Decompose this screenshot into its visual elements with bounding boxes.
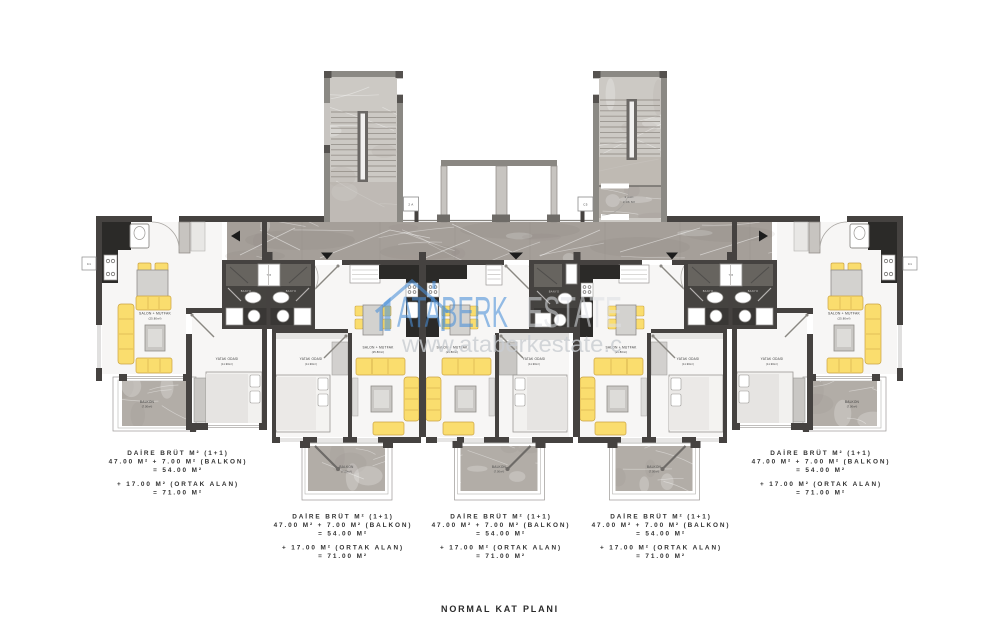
svg-text:+ 17.00 M² (ORTAK ALAN): + 17.00 M² (ORTAK ALAN) [760,481,882,488]
svg-text:(11.90m²): (11.90m²) [221,362,233,366]
svg-text:C1: C1 [87,262,91,266]
svg-text:= 71.00 M²: = 71.00 M² [796,490,846,497]
svg-text:(7.00m²): (7.00m²) [341,470,352,474]
svg-text:2 A: 2 A [408,203,413,207]
svg-text:+ 17.00 M² (ORTAK ALAN): + 17.00 M² (ORTAK ALAN) [282,545,404,552]
svg-text:= 54.00 M²: = 54.00 M² [153,467,203,474]
svg-text:(7.00m²): (7.00m²) [142,405,153,409]
svg-text:SALON + MUTFAK: SALON + MUTFAK [362,346,394,350]
svg-text:BALKON: BALKON [339,465,354,469]
svg-text:BANYO: BANYO [703,289,714,293]
svg-text:+ 17.00 M² (ORTAK ALAN): + 17.00 M² (ORTAK ALAN) [600,545,722,552]
svg-text:DAİRE BRÜT M² (1+1): DAİRE BRÜT M² (1+1) [127,448,229,457]
svg-text:YATAK ODASI: YATAK ODASI [300,357,323,361]
svg-text:+ 17.00 M² (ORTAK ALAN): + 17.00 M² (ORTAK ALAN) [440,545,562,552]
svg-text:= 54.00 M²: = 54.00 M² [318,531,368,538]
svg-text:= 54.00 M²: = 54.00 M² [476,531,526,538]
svg-text:BALKON: BALKON [140,400,155,404]
svg-text:ATABERK: ATABERK [397,288,508,337]
svg-text:BANYO: BANYO [286,289,297,293]
svg-text:DAİRE BRÜT M² (1+1): DAİRE BRÜT M² (1+1) [450,512,552,521]
svg-text:(25.80m²): (25.80m²) [372,350,385,354]
svg-text:= 71.00 M²: = 71.00 M² [318,553,368,560]
svg-text:(7.00m²): (7.00m²) [847,405,858,409]
svg-text:YATAK ODASI: YATAK ODASI [523,357,546,361]
svg-text:NORMAL KAT PLANI: NORMAL KAT PLANI [441,604,559,614]
svg-text:1 kori: 1 kori [624,195,633,199]
svg-text:(11.90m²): (11.90m²) [682,362,694,366]
svg-text:(11.90m²): (11.90m²) [305,362,317,366]
svg-text:DAİRE BRÜT M² (1+1): DAİRE BRÜT M² (1+1) [770,448,872,457]
svg-text:(25.80m²): (25.80m²) [148,317,161,321]
svg-text:SALON + MUTFAK: SALON + MUTFAK [139,312,171,316]
svg-text:(11.90m²): (11.90m²) [766,362,778,366]
svg-text:(25.80m²): (25.80m²) [837,317,850,321]
svg-text:BANYO: BANYO [241,289,252,293]
svg-text:DAİRE BRÜT M² (1+1): DAİRE BRÜT M² (1+1) [292,512,394,521]
svg-text:C1: C1 [908,262,912,266]
svg-text:YATAK ODASI: YATAK ODASI [677,357,700,361]
svg-text:(7.00m²): (7.00m²) [494,470,505,474]
svg-text:(11.90m²): (11.90m²) [528,362,540,366]
svg-text:ESTATE: ESTATE [526,288,622,337]
svg-text:47.00 M² + 7.00 M² (BALKON): 47.00 M² + 7.00 M² (BALKON) [274,522,413,529]
svg-text:= 54.00 M²: = 54.00 M² [796,467,846,474]
svg-text:= 71.00 M²: = 71.00 M² [476,553,526,560]
svg-text:www.ataberkestate.c: www.ataberkestate.c [401,331,622,357]
svg-text:(7.00m²): (7.00m²) [649,470,660,474]
svg-text:47.00 M² + 7.00 M² (BALKON): 47.00 M² + 7.00 M² (BALKON) [432,522,571,529]
svg-text:C5: C5 [583,203,587,207]
svg-text:BALKON: BALKON [647,465,662,469]
svg-text:47.00 M² + 7.00 M² (BALKON): 47.00 M² + 7.00 M² (BALKON) [109,459,248,466]
svg-text:YATAK ODASI: YATAK ODASI [761,357,784,361]
svg-text:DAİRE BRÜT M² (1+1): DAİRE BRÜT M² (1+1) [610,512,712,521]
svg-text:BALKON: BALKON [492,465,507,469]
svg-text:= 71.00 M²: = 71.00 M² [636,553,686,560]
svg-text:SALON + MUTFAK: SALON + MUTFAK [828,312,860,316]
svg-text:BANYO: BANYO [748,289,759,293]
svg-text:T B: T B [729,273,734,277]
svg-text:YATAK ODASI: YATAK ODASI [216,357,239,361]
svg-text:= 54.00 M²: = 54.00 M² [636,531,686,538]
svg-text:+ 17.00 M² (ORTAK ALAN): + 17.00 M² (ORTAK ALAN) [117,481,239,488]
svg-text:BALKON: BALKON [845,400,860,404]
svg-text:47.00 M² + 7.00 M² (BALKON): 47.00 M² + 7.00 M² (BALKON) [592,522,731,529]
svg-text:T B: T B [267,273,272,277]
svg-text:47.00 M² + 7.00 M² (BALKON): 47.00 M² + 7.00 M² (BALKON) [752,459,891,466]
svg-text:= 71.00 M²: = 71.00 M² [153,490,203,497]
